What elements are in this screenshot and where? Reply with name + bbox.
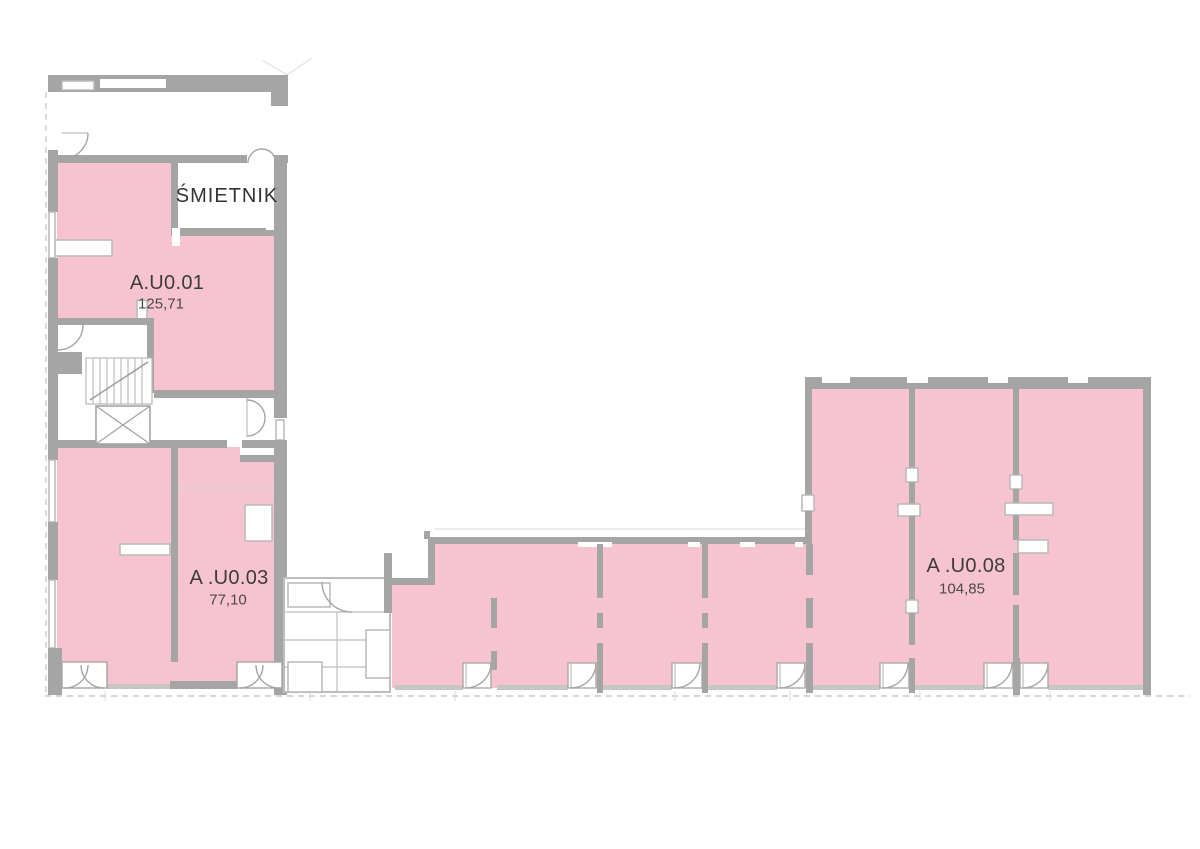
strip-door-2 bbox=[568, 663, 596, 688]
strip-door-3 bbox=[672, 663, 702, 688]
unit-label-au001: A.U0.01 bbox=[130, 273, 204, 293]
bay-window-box bbox=[55, 240, 112, 256]
storage-room bbox=[284, 553, 392, 692]
door-notch-left bbox=[62, 662, 107, 688]
unit-label-au003: A .U0.03 bbox=[189, 568, 268, 588]
unit-area-au001: 125,71 bbox=[138, 297, 184, 312]
room-label-smietnik: ŚMIETNIK bbox=[176, 186, 278, 206]
floor-plan-page: ŚMIETNIK A.U0.01 125,71 A .U0.03 77,10 A… bbox=[0, 0, 1200, 849]
unit-area-au003: 77,10 bbox=[209, 593, 247, 608]
strip-and-au008-region bbox=[392, 385, 1143, 688]
unit-area-au008: 104,85 bbox=[939, 582, 985, 597]
floor-plan-svg bbox=[0, 0, 1200, 849]
door-notch-right bbox=[237, 662, 282, 688]
strip-door-1 bbox=[463, 663, 491, 688]
au008-door-1 bbox=[880, 663, 909, 688]
strip-door-4 bbox=[777, 663, 805, 688]
smietnik-door bbox=[248, 149, 276, 163]
wall-slit-u3 bbox=[120, 544, 170, 555]
unit-label-au008: A .U0.08 bbox=[926, 556, 1005, 576]
au008-door-2 bbox=[984, 663, 1013, 688]
au008-door-3 bbox=[1020, 663, 1048, 688]
staircase bbox=[86, 358, 152, 444]
closet-box bbox=[245, 505, 272, 541]
